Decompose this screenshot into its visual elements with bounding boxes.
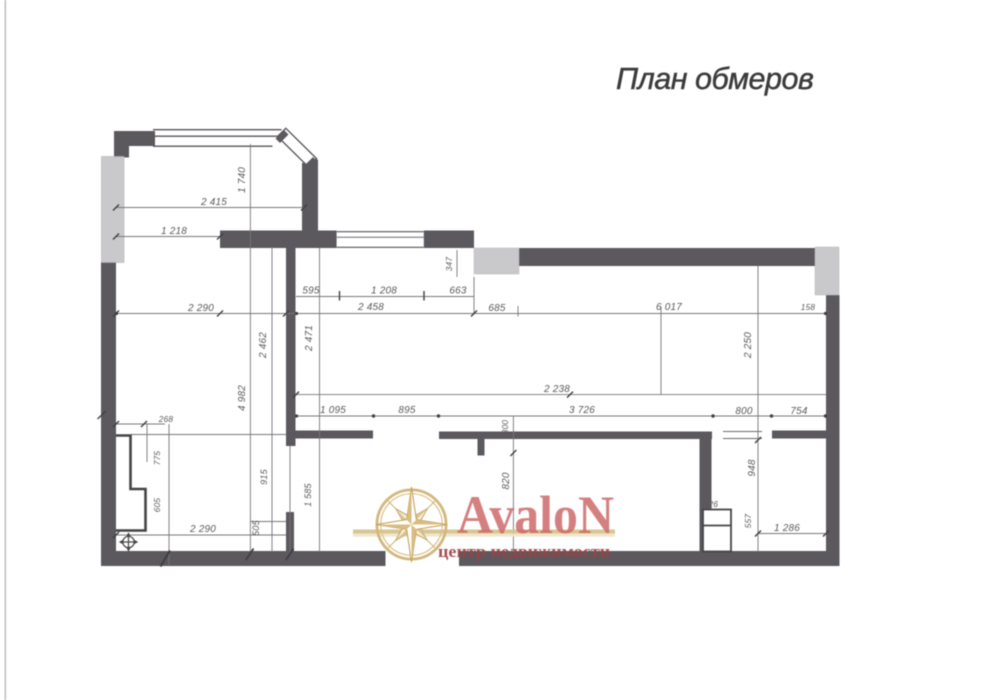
svg-text:4 982: 4 982 xyxy=(237,385,248,411)
svg-text:2 458: 2 458 xyxy=(357,302,384,313)
svg-text:2 290: 2 290 xyxy=(187,303,214,314)
svg-text:План обмеров: План обмеров xyxy=(616,62,814,96)
svg-text:663: 663 xyxy=(449,286,467,297)
svg-text:2 250: 2 250 xyxy=(743,332,754,359)
svg-text:326: 326 xyxy=(704,499,719,509)
svg-text:2 415: 2 415 xyxy=(200,197,227,208)
svg-text:2 462: 2 462 xyxy=(258,332,269,359)
svg-text:1 286: 1 286 xyxy=(774,523,800,534)
svg-text:915: 915 xyxy=(259,468,269,484)
svg-text:2 471: 2 471 xyxy=(304,325,315,352)
svg-text:754: 754 xyxy=(790,406,808,417)
svg-text:605: 605 xyxy=(152,498,162,513)
svg-text:948: 948 xyxy=(747,459,758,477)
svg-text:1 218: 1 218 xyxy=(161,226,187,237)
svg-text:300: 300 xyxy=(500,420,510,435)
svg-text:347: 347 xyxy=(444,257,454,272)
svg-text:800: 800 xyxy=(735,406,753,417)
svg-text:775: 775 xyxy=(152,451,162,466)
svg-text:268: 268 xyxy=(158,414,174,424)
svg-text:AvaloN: AvaloN xyxy=(457,485,614,545)
svg-text:158: 158 xyxy=(801,302,816,312)
svg-text:центр недвижимости: центр недвижимости xyxy=(438,542,611,561)
svg-text:895: 895 xyxy=(398,405,416,416)
svg-text:1 208: 1 208 xyxy=(371,286,397,297)
svg-text:685: 685 xyxy=(488,303,506,314)
svg-text:2 238: 2 238 xyxy=(543,384,570,395)
svg-text:1 740: 1 740 xyxy=(237,167,248,193)
svg-text:6 017: 6 017 xyxy=(656,302,682,313)
svg-text:505: 505 xyxy=(251,519,261,535)
svg-text:557: 557 xyxy=(743,514,753,529)
svg-text:1 095: 1 095 xyxy=(320,405,346,416)
svg-text:1 585: 1 585 xyxy=(303,482,313,506)
svg-text:3 726: 3 726 xyxy=(569,405,595,416)
svg-text:595: 595 xyxy=(302,286,320,297)
svg-text:2 290: 2 290 xyxy=(189,524,216,535)
